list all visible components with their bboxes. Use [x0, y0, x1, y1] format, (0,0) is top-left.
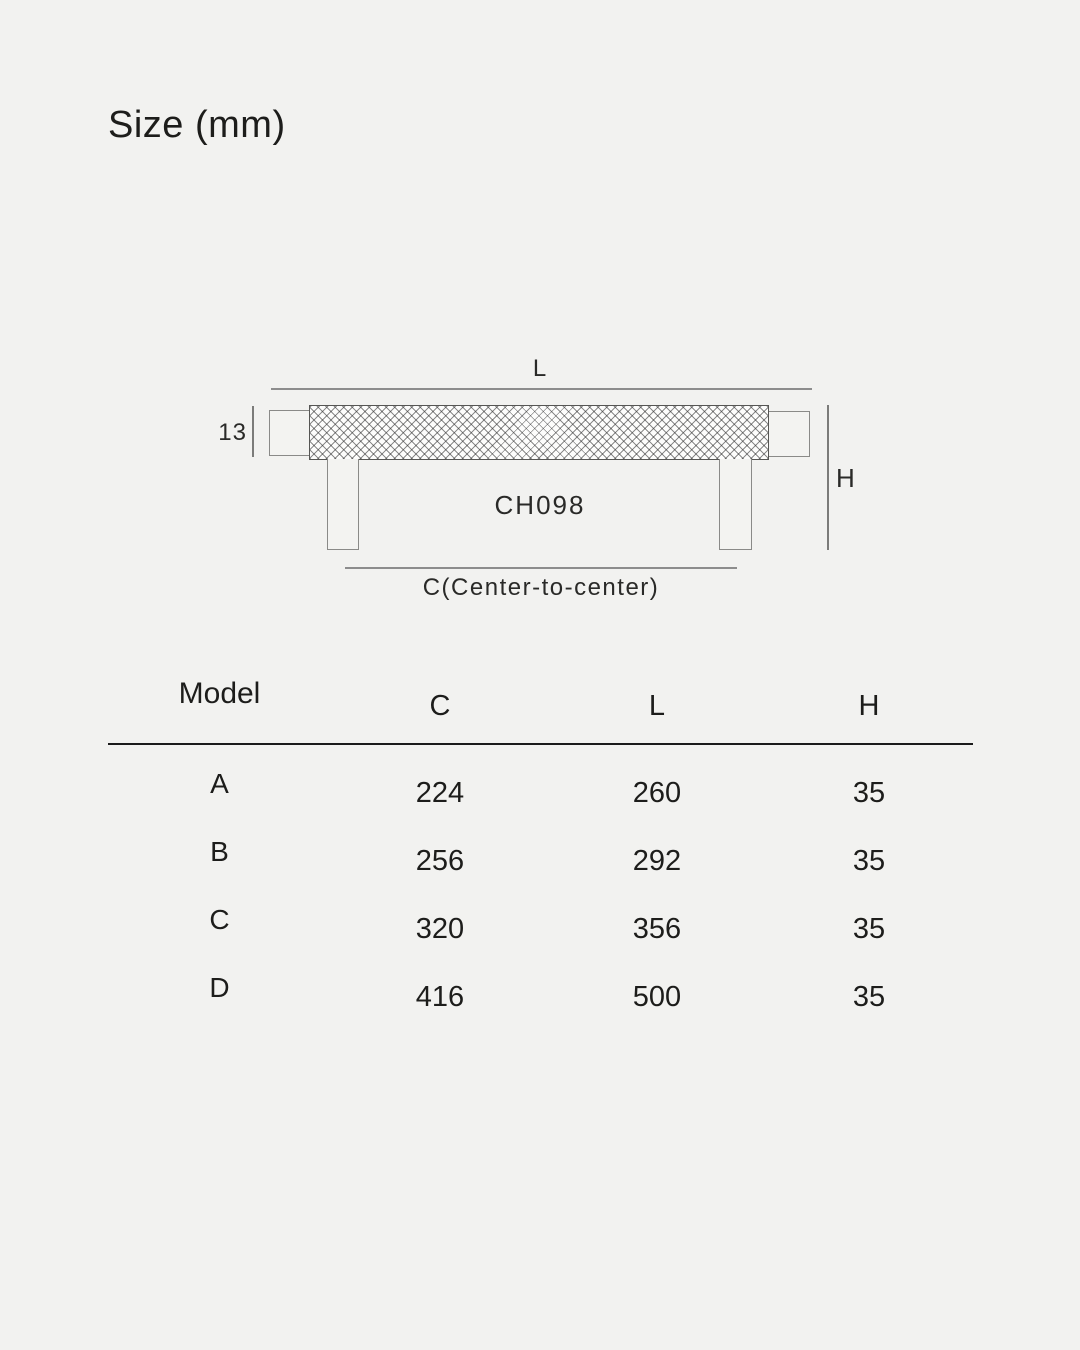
row-c-value: 416: [331, 981, 549, 1014]
row-l-value: 292: [549, 845, 765, 878]
header-h: H: [765, 690, 973, 723]
header-model: Model: [108, 677, 331, 711]
row-l-value: 260: [549, 777, 765, 810]
product-code-label: CH098: [440, 490, 640, 521]
handle-post-left: [327, 459, 359, 550]
row-c-value: 224: [331, 777, 549, 810]
row-model: D: [108, 972, 331, 1004]
row-h-value: 35: [765, 981, 973, 1014]
size-spec-sheet: Size (mm) L 13 H CH098 C(Center-to-cente…: [0, 0, 1080, 1350]
table-header-divider: [108, 743, 973, 745]
table-row: B 256 292 35: [108, 827, 973, 895]
row-model: A: [108, 768, 331, 800]
dim-line-height: [827, 405, 829, 550]
row-model: B: [108, 836, 331, 868]
handle-knurled-bar: [309, 405, 769, 460]
row-h-value: 35: [765, 913, 973, 946]
table-row: C 320 356 35: [108, 895, 973, 963]
row-model: C: [108, 904, 331, 936]
handle-end-cap-left: [269, 410, 311, 456]
row-h-value: 35: [765, 777, 973, 810]
dim-line-center-to-center: [345, 567, 737, 569]
handle-post-right: [719, 459, 752, 550]
header-l: L: [549, 690, 765, 723]
header-c: C: [331, 690, 549, 723]
dim-label-center-to-center: C(Center-to-center): [341, 574, 741, 602]
row-c-value: 256: [331, 845, 549, 878]
handle-end-cap-right: [767, 411, 810, 457]
dim-label-thickness: 13: [203, 419, 247, 447]
table-header-row: Model C L H: [108, 670, 973, 742]
dim-line-thickness: [252, 406, 254, 457]
row-c-value: 320: [331, 913, 549, 946]
dim-label-length: L: [500, 355, 580, 383]
table-row: A 224 260 35: [108, 759, 973, 827]
dim-line-length: [271, 388, 812, 390]
row-l-value: 500: [549, 981, 765, 1014]
dim-label-height: H: [836, 463, 876, 494]
row-h-value: 35: [765, 845, 973, 878]
row-l-value: 356: [549, 913, 765, 946]
table-row: D 416 500 35: [108, 963, 973, 1031]
